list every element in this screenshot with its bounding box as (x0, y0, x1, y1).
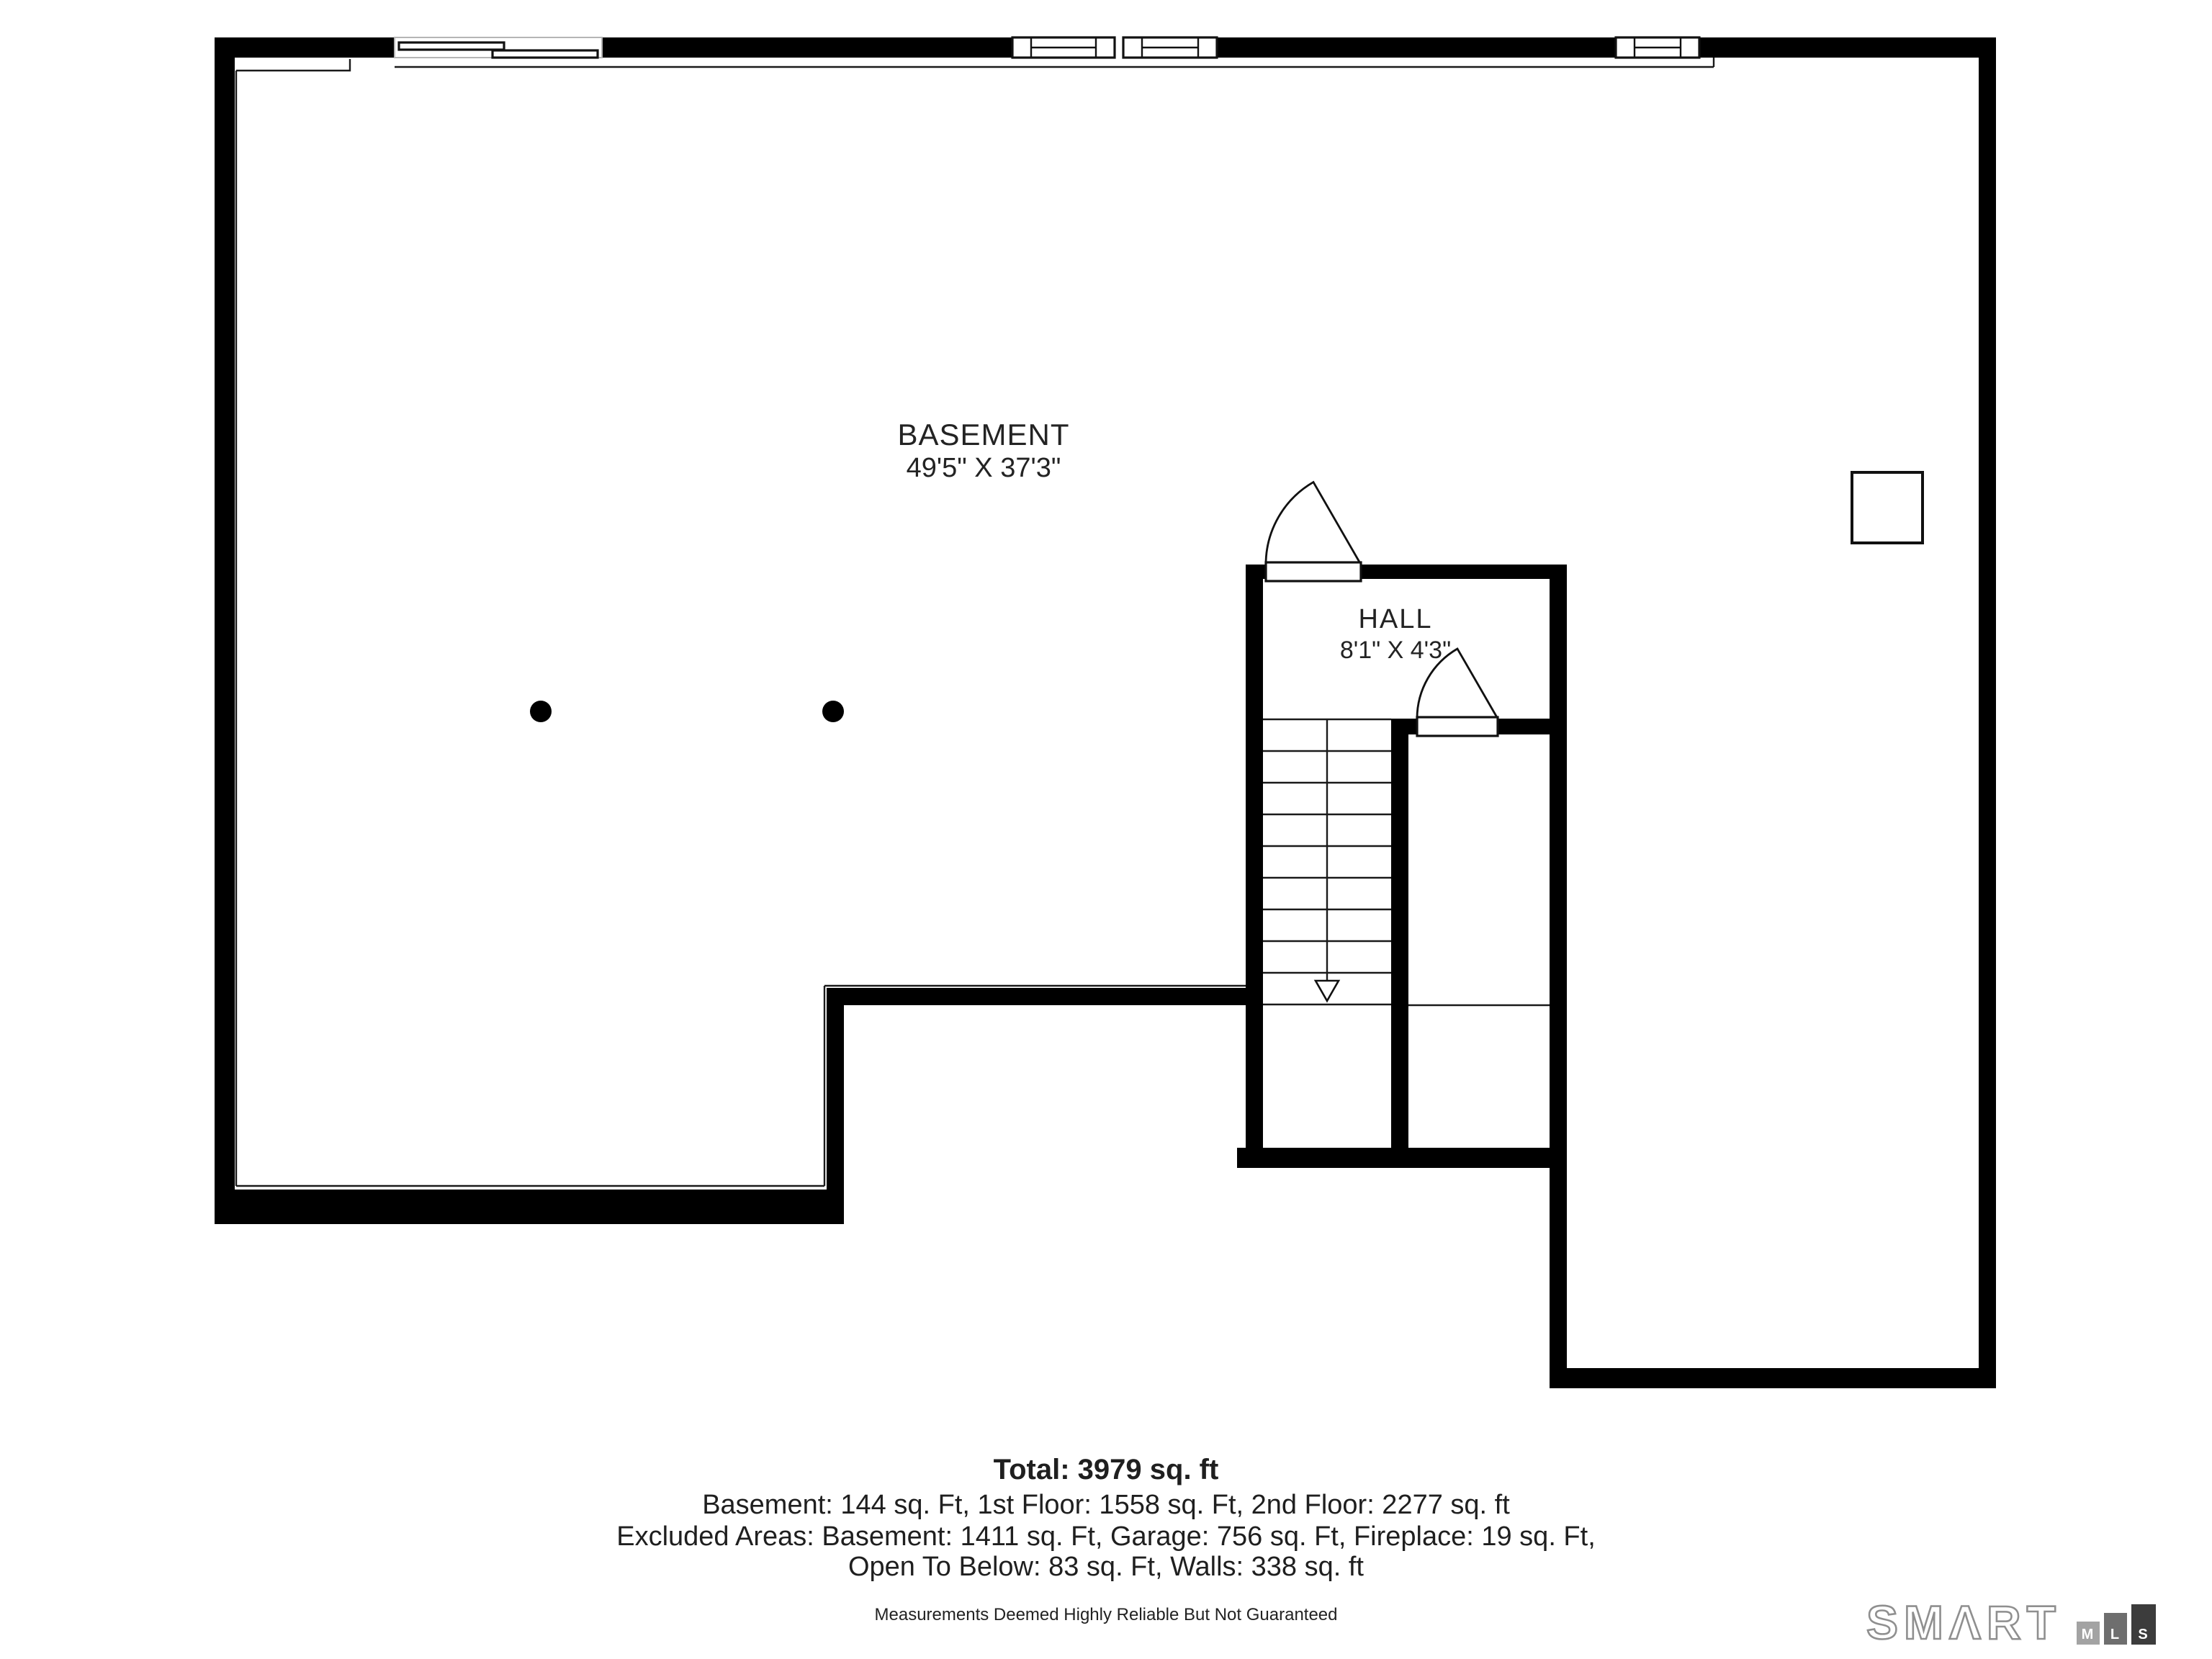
support-column-dot-2 (822, 701, 844, 722)
window-sliding-pair (395, 37, 602, 58)
floorplan-stage: BASEMENT 49'5" X 37'3" HALL 8'1" X 4'3" … (0, 0, 2212, 1659)
stairs (1263, 719, 1391, 1004)
window-mid-2 (1123, 37, 1217, 58)
smartmls-wordmark: SMΛRT (1866, 1601, 2062, 1645)
door-hall-top (1266, 482, 1361, 581)
room-name-hall: HALL (1340, 605, 1451, 637)
room-dims-basement: 49'5" X 37'3" (897, 454, 1069, 485)
stairs-down-arrow-icon (1316, 981, 1339, 1001)
excluded-areas-text-1: Excluded Areas: Basement: 1411 sq. Ft, G… (0, 1522, 2212, 1554)
mls-block-m: M (2076, 1622, 2099, 1645)
excluded-areas-text-2: Open To Below: 83 sq. Ft, Walls: 338 sq.… (0, 1552, 2212, 1584)
window-right (1616, 37, 1699, 58)
mls-block-s: S (2131, 1604, 2155, 1645)
smartmls-mls-blocks: M L S (2072, 1604, 2155, 1645)
plan-linework (0, 0, 2212, 1659)
hall-label-group: HALL 8'1" X 4'3" (1340, 605, 1451, 665)
smartmls-logo: SMΛRT M L S (1866, 1601, 2155, 1645)
floorplan-page: BASEMENT 49'5" X 37'3" HALL 8'1" X 4'3" … (0, 0, 2212, 1659)
support-column-dot-1 (530, 701, 552, 722)
total-area-text: Total: 3979 sq. ft (0, 1455, 2212, 1488)
window-mid-1 (1012, 37, 1115, 58)
room-dims-hall: 8'1" X 4'3" (1340, 637, 1451, 665)
utility-box (1852, 472, 1923, 543)
floor-areas-text: Basement: 144 sq. Ft, 1st Floor: 1558 sq… (0, 1491, 2212, 1522)
basement-label-group: BASEMENT 49'5" X 37'3" (897, 419, 1069, 485)
room-name-basement: BASEMENT (897, 419, 1069, 454)
interior-outline (236, 58, 1714, 1186)
mls-block-l: L (2103, 1613, 2126, 1645)
